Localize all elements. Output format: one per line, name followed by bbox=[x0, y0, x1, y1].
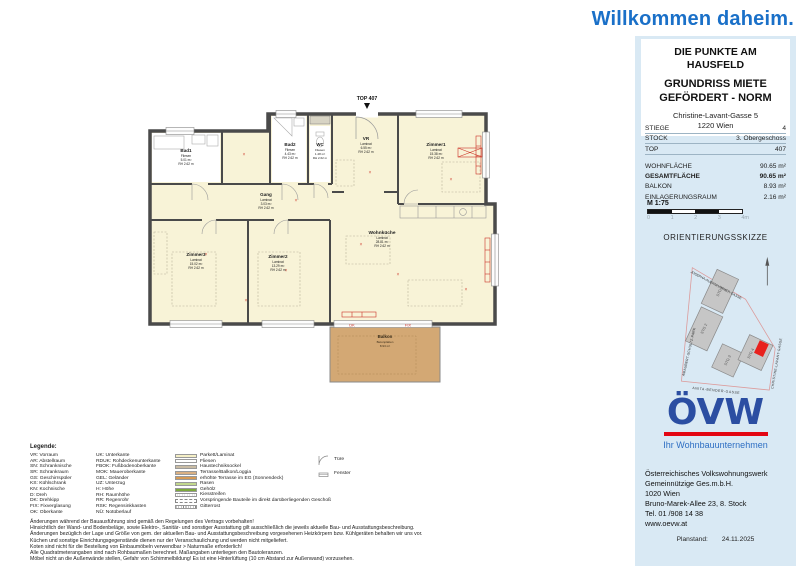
svg-text:×: × bbox=[450, 177, 453, 183]
swatch-terrasse bbox=[175, 471, 197, 475]
room-label-vr: VR bbox=[363, 136, 370, 141]
svg-text:RH 2.62 m: RH 2.62 m bbox=[188, 266, 204, 270]
area-table: WOHNFLÄCHE90.65 m² GESAMTFLÄCHE90.65 m² … bbox=[645, 162, 786, 203]
shaft bbox=[310, 116, 330, 124]
info-row-stiege: STIEGE4 bbox=[645, 123, 786, 134]
swatch-gehoelz bbox=[175, 488, 197, 492]
legend: Legende: VR: VorraumAR: Abstellraum SN: … bbox=[30, 444, 610, 453]
legend-abbreviations-2: UK: UnterkanteRDUK: Rohdeckenunterkante … bbox=[96, 453, 160, 515]
balcony-window-label-fix: FIX bbox=[405, 322, 412, 327]
scale-bar bbox=[647, 209, 743, 214]
scale-indicator: M 1:75 0 1 2 3 4m bbox=[647, 200, 747, 221]
disclaimer-text: Änderungen während der Bauausführung sin… bbox=[30, 519, 590, 562]
plan-type: GRUNDRISS MIETE GEFÖRDERT - NORM bbox=[645, 78, 786, 106]
legend-symbols: Türe Fenster bbox=[318, 453, 351, 481]
area-row-gesamtflaeche: GESAMTFLÄCHE90.65 m² bbox=[645, 172, 786, 182]
swatch-fliesen bbox=[175, 459, 197, 463]
scale-ticks: 0 1 2 3 4m bbox=[647, 215, 749, 221]
area-row-wohnflaeche: WOHNFLÄCHE90.65 m² bbox=[645, 162, 786, 172]
ovw-logo-text: ÖVW bbox=[635, 396, 796, 430]
window-icon bbox=[318, 469, 329, 480]
north-arrow-icon bbox=[765, 257, 769, 286]
svg-text:RH 2.62 m: RH 2.62 m bbox=[282, 156, 298, 160]
company-address: Österreichisches Volkswohnungswerk Gemei… bbox=[645, 469, 767, 529]
svg-text:RH 2.62 m: RH 2.62 m bbox=[258, 206, 274, 210]
legend-title: Legende: bbox=[30, 444, 610, 450]
balcony-window-label-dk: DK bbox=[349, 322, 355, 327]
svg-text:×: × bbox=[369, 170, 372, 176]
svg-text:×: × bbox=[397, 272, 400, 278]
room-label-zimmer3: Zimmer3 bbox=[186, 252, 206, 257]
room-label-gang: Gang bbox=[260, 192, 272, 197]
company-logo: ÖVW Ihr Wohnbauunternehmen bbox=[635, 396, 796, 450]
room-label-balkon: Balkon bbox=[378, 334, 393, 339]
legend-abbreviations-1: VR: VorraumAR: Abstellraum SN: Schrankni… bbox=[30, 453, 72, 515]
svg-text:RH 2.62 m: RH 2.62 m bbox=[428, 156, 444, 160]
floorplan-drawing: DK FIX TOP 407 bbox=[146, 84, 506, 389]
room-label-zimmer1: Zimmer1 bbox=[426, 142, 446, 147]
svg-text:RH 2.62 m: RH 2.62 m bbox=[178, 162, 194, 166]
svg-text:RH 2.62 m: RH 2.62 m bbox=[358, 150, 374, 154]
info-row-top: TOP407 bbox=[645, 144, 786, 155]
room-label-wc: WC bbox=[316, 142, 324, 147]
room-label-bad1: Bad1 bbox=[180, 148, 192, 153]
orientation-sketch: STG 1 STG 2 STG 3 STG 4 JOSEPHA-AUERNHAM… bbox=[640, 244, 790, 394]
entrance-top-label: TOP 407 bbox=[357, 96, 378, 102]
svg-text:RH 2.62 m: RH 2.62 m bbox=[374, 244, 390, 248]
info-sidebar: DIE PUNKTE AM HAUSFELD GRUNDRISS MIETE G… bbox=[635, 36, 796, 566]
welcome-slogan: Willkommen daheim. bbox=[494, 8, 794, 31]
legend-materials: Parkett/Laminat Fliesen Haustechniksocke… bbox=[175, 453, 331, 509]
room-label-zimmer2: Zimmer2 bbox=[268, 254, 288, 259]
project-title-box: DIE PUNKTE AM HAUSFELD GRUNDRISS MIETE G… bbox=[641, 39, 790, 136]
project-name: DIE PUNKTE AM HAUSFELD bbox=[645, 46, 786, 72]
svg-text:×: × bbox=[360, 242, 363, 248]
svg-text:×: × bbox=[243, 152, 246, 158]
room-label-bad2: Bad2 bbox=[284, 142, 296, 147]
swatch-rasen bbox=[175, 482, 197, 486]
svg-text:8.93 m²: 8.93 m² bbox=[380, 344, 390, 348]
svg-text:×: × bbox=[465, 287, 468, 293]
plan-date: Planstand: 24.11.2025 bbox=[635, 536, 796, 543]
door-icon bbox=[318, 455, 329, 466]
orientation-sketch-title: ORIENTIERUNGSSKIZZE bbox=[635, 233, 796, 242]
entrance-arrow-icon bbox=[364, 103, 370, 109]
swatch-vorspringende-bauteile bbox=[175, 499, 197, 503]
svg-text:RH 2.62 m: RH 2.62 m bbox=[313, 156, 328, 160]
floorplan-sheet: { "colors": { "welcome_blue": "#1a70c8",… bbox=[0, 0, 800, 566]
swatch-erhoehte-terrasse bbox=[175, 476, 197, 480]
company-website: www.oevw.at bbox=[645, 519, 767, 529]
unit-info-table: STIEGE4 STOCK3. Obergeschoss TOP407 WOHN… bbox=[645, 123, 786, 202]
swatch-parkett bbox=[175, 454, 197, 458]
swatch-kiesstreifen bbox=[175, 493, 197, 497]
svg-text:×: × bbox=[295, 198, 298, 204]
info-row-stock: STOCK3. Obergeschoss bbox=[645, 134, 786, 145]
entrance-door-gap bbox=[356, 111, 378, 118]
svg-text:RH 2.62 m: RH 2.62 m bbox=[270, 268, 286, 272]
swatch-haustechniksockel bbox=[175, 465, 197, 469]
ovw-logo-tagline: Ihr Wohnbauunternehmen bbox=[635, 440, 796, 450]
svg-text:×: × bbox=[245, 298, 248, 304]
swatch-gitterrost bbox=[175, 505, 197, 509]
area-row-balkon: BALKON8.93 m² bbox=[645, 182, 786, 192]
